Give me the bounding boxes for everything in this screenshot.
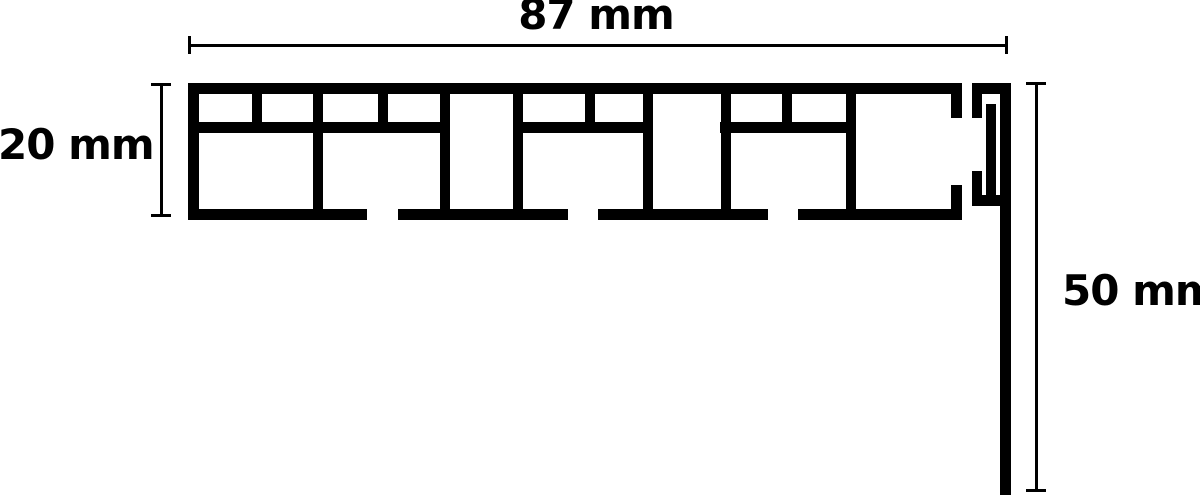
height-dim-line — [160, 84, 163, 217]
left-wall — [188, 83, 199, 220]
divider-short-3 — [585, 94, 595, 133]
height-dim-tick-bottom — [151, 214, 171, 217]
hook-top-leg — [972, 94, 982, 118]
diagram-canvas: 87 mm 20 mm 50 mm — [0, 0, 1200, 498]
drop-dim-line — [1035, 84, 1038, 492]
divider-full-3 — [513, 94, 523, 220]
dimension-line-height — [151, 83, 171, 217]
top-wall — [188, 83, 962, 94]
bottom-clip-finger — [951, 185, 962, 209]
fascia-clip-assembly — [972, 83, 1011, 495]
fascia-strip — [1000, 83, 1011, 495]
profile-body — [188, 83, 962, 220]
divider-full-4 — [643, 94, 653, 220]
divider-short-4 — [782, 94, 792, 133]
drop-dim-tick-bottom — [1026, 489, 1046, 492]
divider-full-6 — [846, 94, 856, 220]
bottom-wall-4 — [798, 209, 962, 220]
width-dim-tick-left — [188, 36, 191, 54]
top-clip-finger — [951, 94, 962, 118]
drop-dim-tick-top — [1026, 82, 1046, 85]
hook-bottom-leg — [972, 171, 982, 195]
profile-cross-section-drawing — [0, 0, 1200, 498]
mid-web-center — [513, 122, 653, 133]
divider-full-1 — [313, 94, 323, 220]
bottom-wall-2 — [398, 209, 568, 220]
bottom-wall-3 — [598, 209, 768, 220]
divider-short-2 — [378, 94, 388, 133]
divider-full-2 — [440, 94, 450, 220]
width-dim-line — [189, 44, 1007, 47]
width-dimension-label: 87 mm — [506, 0, 686, 37]
bottom-wall-1 — [188, 209, 367, 220]
divider-short-1 — [252, 94, 262, 133]
width-dim-tick-right — [1005, 36, 1008, 54]
dimension-line-drop — [1026, 82, 1046, 492]
divider-full-5 — [721, 94, 731, 220]
height-dimension-label: 20 mm — [0, 123, 132, 167]
height-dim-tick-top — [151, 83, 171, 86]
hook-inner-bar — [986, 104, 996, 195]
drop-dimension-label: 50 mm — [1062, 269, 1200, 313]
